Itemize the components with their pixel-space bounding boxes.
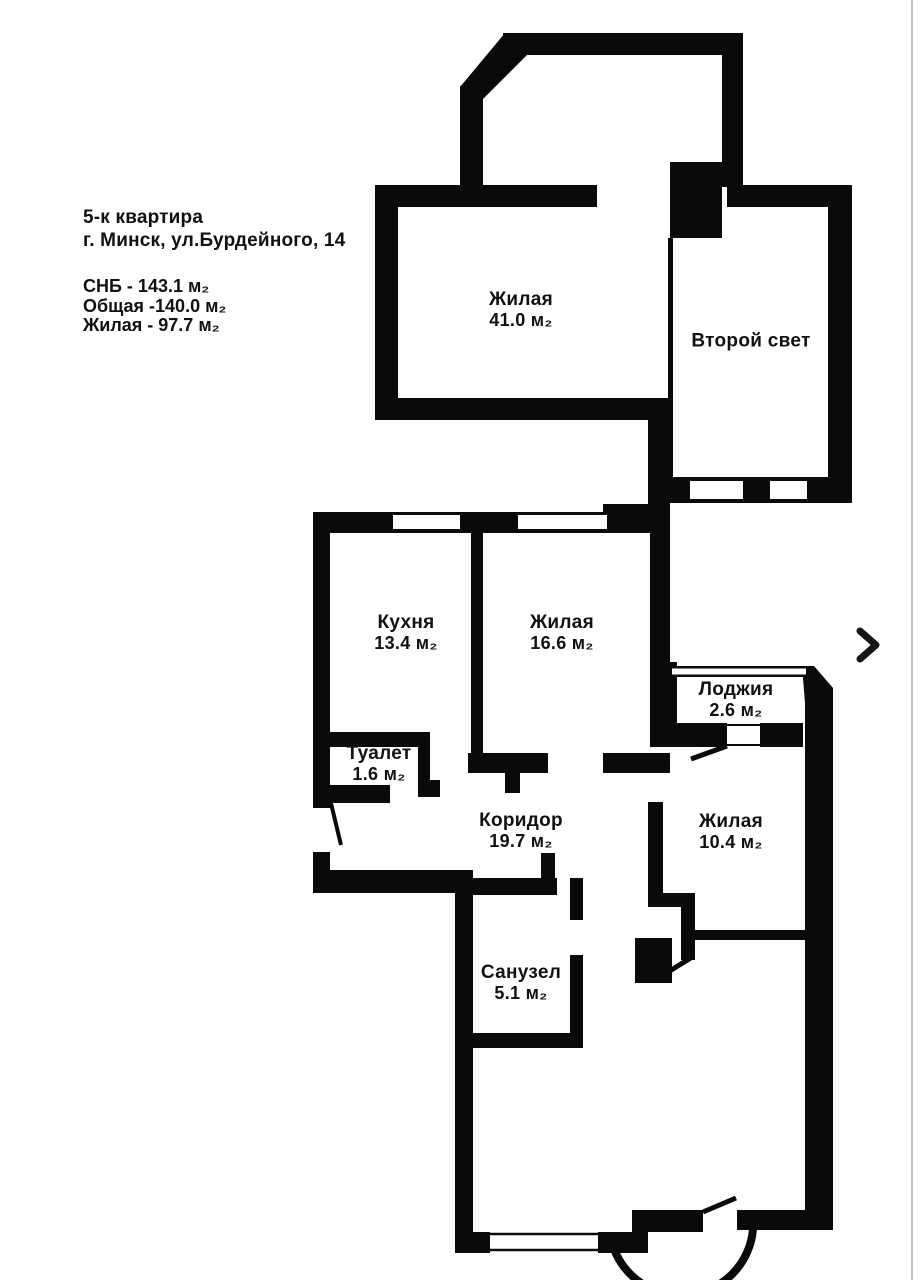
apartment-type: 5-к квартира: [83, 206, 345, 229]
room-name: Второй свет: [691, 331, 810, 352]
room-area: 10.4 м₂: [699, 832, 763, 853]
floor-plan-page: 5-к квартира г. Минск, ул.Бурдейного, 14…: [0, 0, 920, 1280]
stat-living-area: Жилая - 97.7 м₂: [83, 316, 345, 336]
room-area: 16.6 м₂: [530, 633, 594, 654]
photo-edge-line: [911, 0, 913, 1280]
room-label-living-41: Жилая 41.0 м₂: [489, 289, 553, 331]
room-name: Туалет: [346, 743, 411, 764]
apartment-address: г. Минск, ул.Бурдейного, 14: [83, 229, 345, 252]
room-label-toilet: Туалет 1.6 м₂: [346, 743, 411, 785]
room-label-living-16: Жилая 16.6 м₂: [530, 612, 594, 654]
room-label-kitchen: Кухня 13.4 м₂: [374, 612, 437, 654]
room-label-bathroom: Санузел 5.1 м₂: [481, 962, 561, 1004]
next-image-button[interactable]: [846, 622, 888, 668]
room-name: Жилая: [699, 811, 763, 832]
room-area: 41.0 м₂: [489, 310, 553, 331]
room-name: Жилая: [489, 289, 553, 310]
stat-snb: СНБ - 143.1 м₂: [83, 277, 345, 297]
room-name: Жилая: [530, 612, 594, 633]
room-area: 2.6 м₂: [699, 700, 774, 721]
stat-total-area: Общая -140.0 м₂: [83, 297, 345, 317]
area-stats: СНБ - 143.1 м₂ Общая -140.0 м₂ Жилая - 9…: [83, 277, 345, 336]
room-name: Лоджия: [699, 679, 774, 700]
room-area: 19.7 м₂: [479, 831, 563, 852]
room-area: 1.6 м₂: [346, 764, 411, 785]
room-label-loggia: Лоджия 2.6 м₂: [699, 679, 774, 721]
chevron-right-icon: [852, 626, 882, 664]
room-label-second-light: Второй свет: [691, 331, 810, 352]
room-label-living-10: Жилая 10.4 м₂: [699, 811, 763, 853]
plan-header: 5-к квартира г. Минск, ул.Бурдейного, 14…: [83, 206, 345, 336]
room-label-corridor: Коридор 19.7 м₂: [479, 810, 563, 852]
room-area: 5.1 м₂: [481, 983, 561, 1004]
room-name: Кухня: [374, 612, 437, 633]
floor-plan-drawing: [0, 0, 920, 1280]
room-name: Коридор: [479, 810, 563, 831]
room-area: 13.4 м₂: [374, 633, 437, 654]
room-name: Санузел: [481, 962, 561, 983]
